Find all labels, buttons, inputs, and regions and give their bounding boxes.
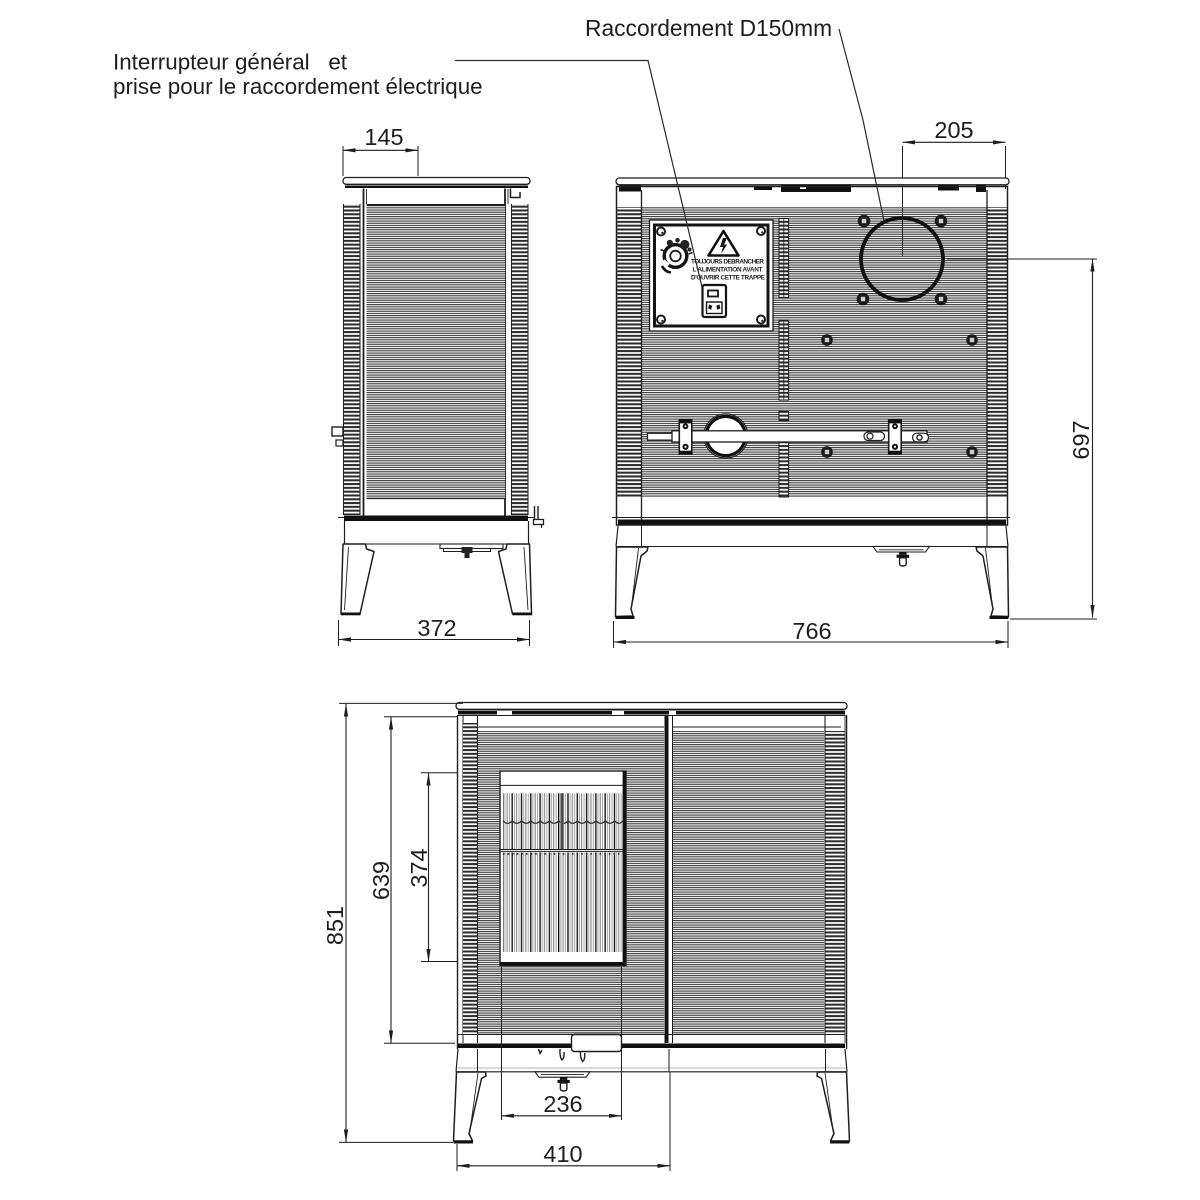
svg-text:410: 410: [543, 1141, 582, 1167]
svg-text:Raccordement D150mm: Raccordement D150mm: [585, 15, 832, 41]
svg-text:639: 639: [368, 861, 394, 900]
svg-text:D'OUVRIR CETTE TRAPPE: D'OUVRIR CETTE TRAPPE: [691, 275, 766, 282]
svg-text:L'ALIMENTATION AVANT: L'ALIMENTATION AVANT: [693, 267, 763, 274]
svg-text:TOUJOURS DEBRANCHER: TOUJOURS DEBRANCHER: [691, 259, 764, 266]
svg-text:Interrupteur général et: Interrupteur général et: [113, 50, 348, 75]
svg-text:851: 851: [322, 906, 348, 945]
svg-text:205: 205: [934, 117, 973, 143]
svg-text:236: 236: [543, 1091, 582, 1117]
svg-text:697: 697: [1068, 420, 1094, 459]
svg-text:prise pour le raccordement éle: prise pour le raccordement électrique: [113, 74, 483, 99]
svg-text:372: 372: [417, 615, 456, 641]
svg-text:145: 145: [364, 124, 403, 150]
svg-text:766: 766: [792, 618, 831, 644]
